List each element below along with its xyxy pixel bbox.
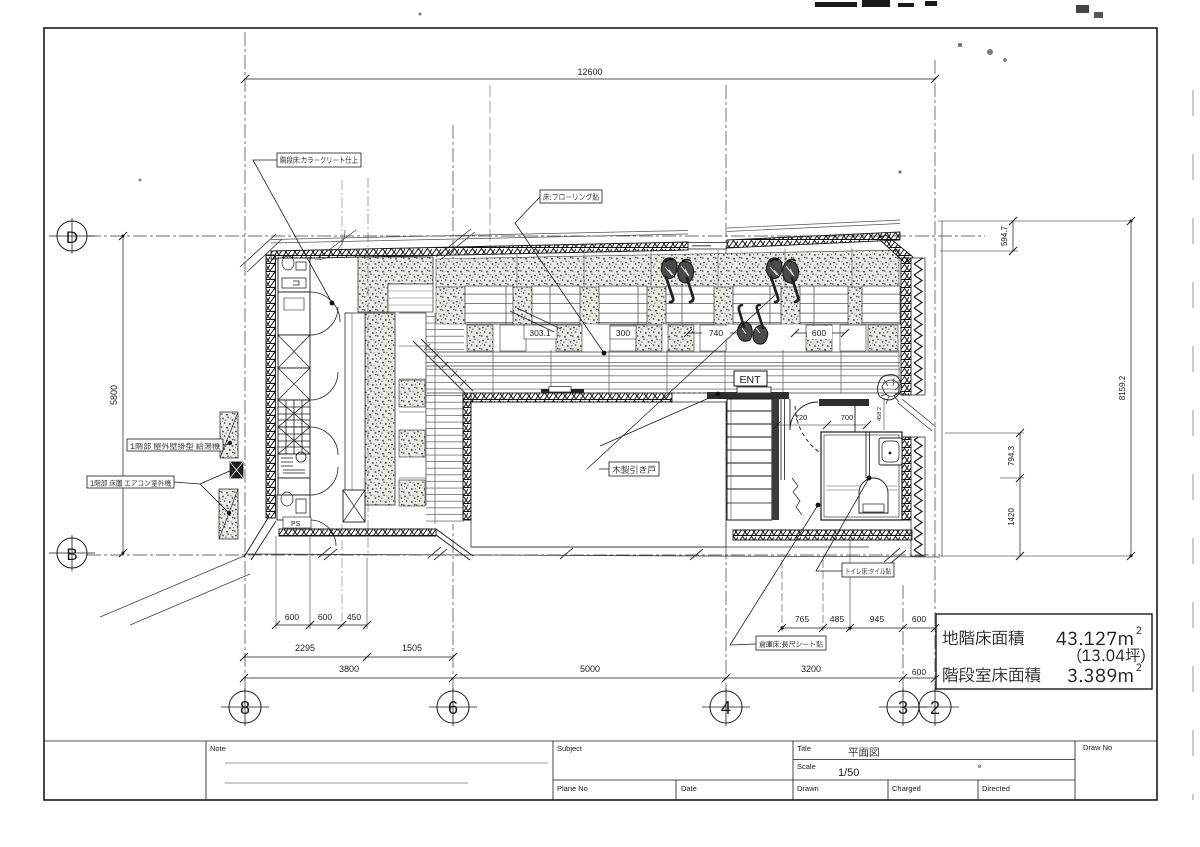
svg-text:600: 600 (912, 614, 926, 624)
svg-text:594.7: 594.7 (1000, 225, 1009, 246)
svg-text:ENT: ENT (740, 374, 762, 386)
svg-text:300: 300 (616, 328, 630, 338)
svg-text:B: B (66, 545, 77, 564)
svg-text:458.2: 458.2 (877, 407, 883, 421)
svg-text:450: 450 (347, 612, 361, 622)
svg-text:600: 600 (285, 612, 299, 622)
svg-text:Scale: Scale (797, 762, 816, 771)
svg-text:945: 945 (870, 614, 884, 624)
svg-text:5800: 5800 (109, 385, 119, 405)
svg-text:12600: 12600 (577, 67, 602, 77)
svg-text:2: 2 (930, 698, 940, 718)
svg-text:Plane No: Plane No (557, 784, 588, 793)
svg-text:Date: Date (681, 784, 697, 793)
svg-text:720: 720 (795, 413, 808, 422)
svg-text:600: 600 (912, 667, 926, 677)
svg-text:Charged: Charged (892, 784, 921, 793)
svg-text:5000: 5000 (580, 664, 600, 674)
svg-text:6: 6 (448, 698, 458, 718)
svg-text:3200: 3200 (801, 664, 821, 674)
svg-text:Note: Note (210, 744, 226, 753)
svg-text:765: 765 (795, 614, 809, 624)
svg-text:Directed: Directed (982, 784, 1010, 793)
svg-text:2295: 2295 (295, 643, 315, 653)
svg-text:1/50: 1/50 (838, 767, 859, 779)
svg-text:4: 4 (721, 698, 731, 718)
svg-text:1505: 1505 (402, 643, 422, 653)
svg-text:Subject: Subject (557, 744, 583, 753)
svg-text:794.3: 794.3 (1007, 445, 1016, 466)
svg-text:303.1: 303.1 (529, 328, 551, 338)
svg-text:3800: 3800 (339, 664, 359, 674)
svg-text:700: 700 (841, 413, 854, 422)
svg-text:8: 8 (240, 698, 250, 718)
svg-text:Drawn: Drawn (797, 784, 819, 793)
svg-text:3: 3 (898, 698, 908, 718)
svg-text:Title: Title (797, 744, 811, 753)
svg-text:8159.2: 8159.2 (1118, 375, 1127, 400)
svg-text:485: 485 (830, 614, 844, 624)
svg-text:600: 600 (318, 612, 332, 622)
svg-text:1420: 1420 (1007, 508, 1016, 526)
svg-text:PS: PS (291, 521, 301, 528)
svg-text:Draw No: Draw No (1083, 743, 1112, 752)
svg-text:740: 740 (709, 328, 723, 338)
svg-text:600: 600 (812, 328, 826, 338)
svg-text:D: D (66, 228, 78, 247)
